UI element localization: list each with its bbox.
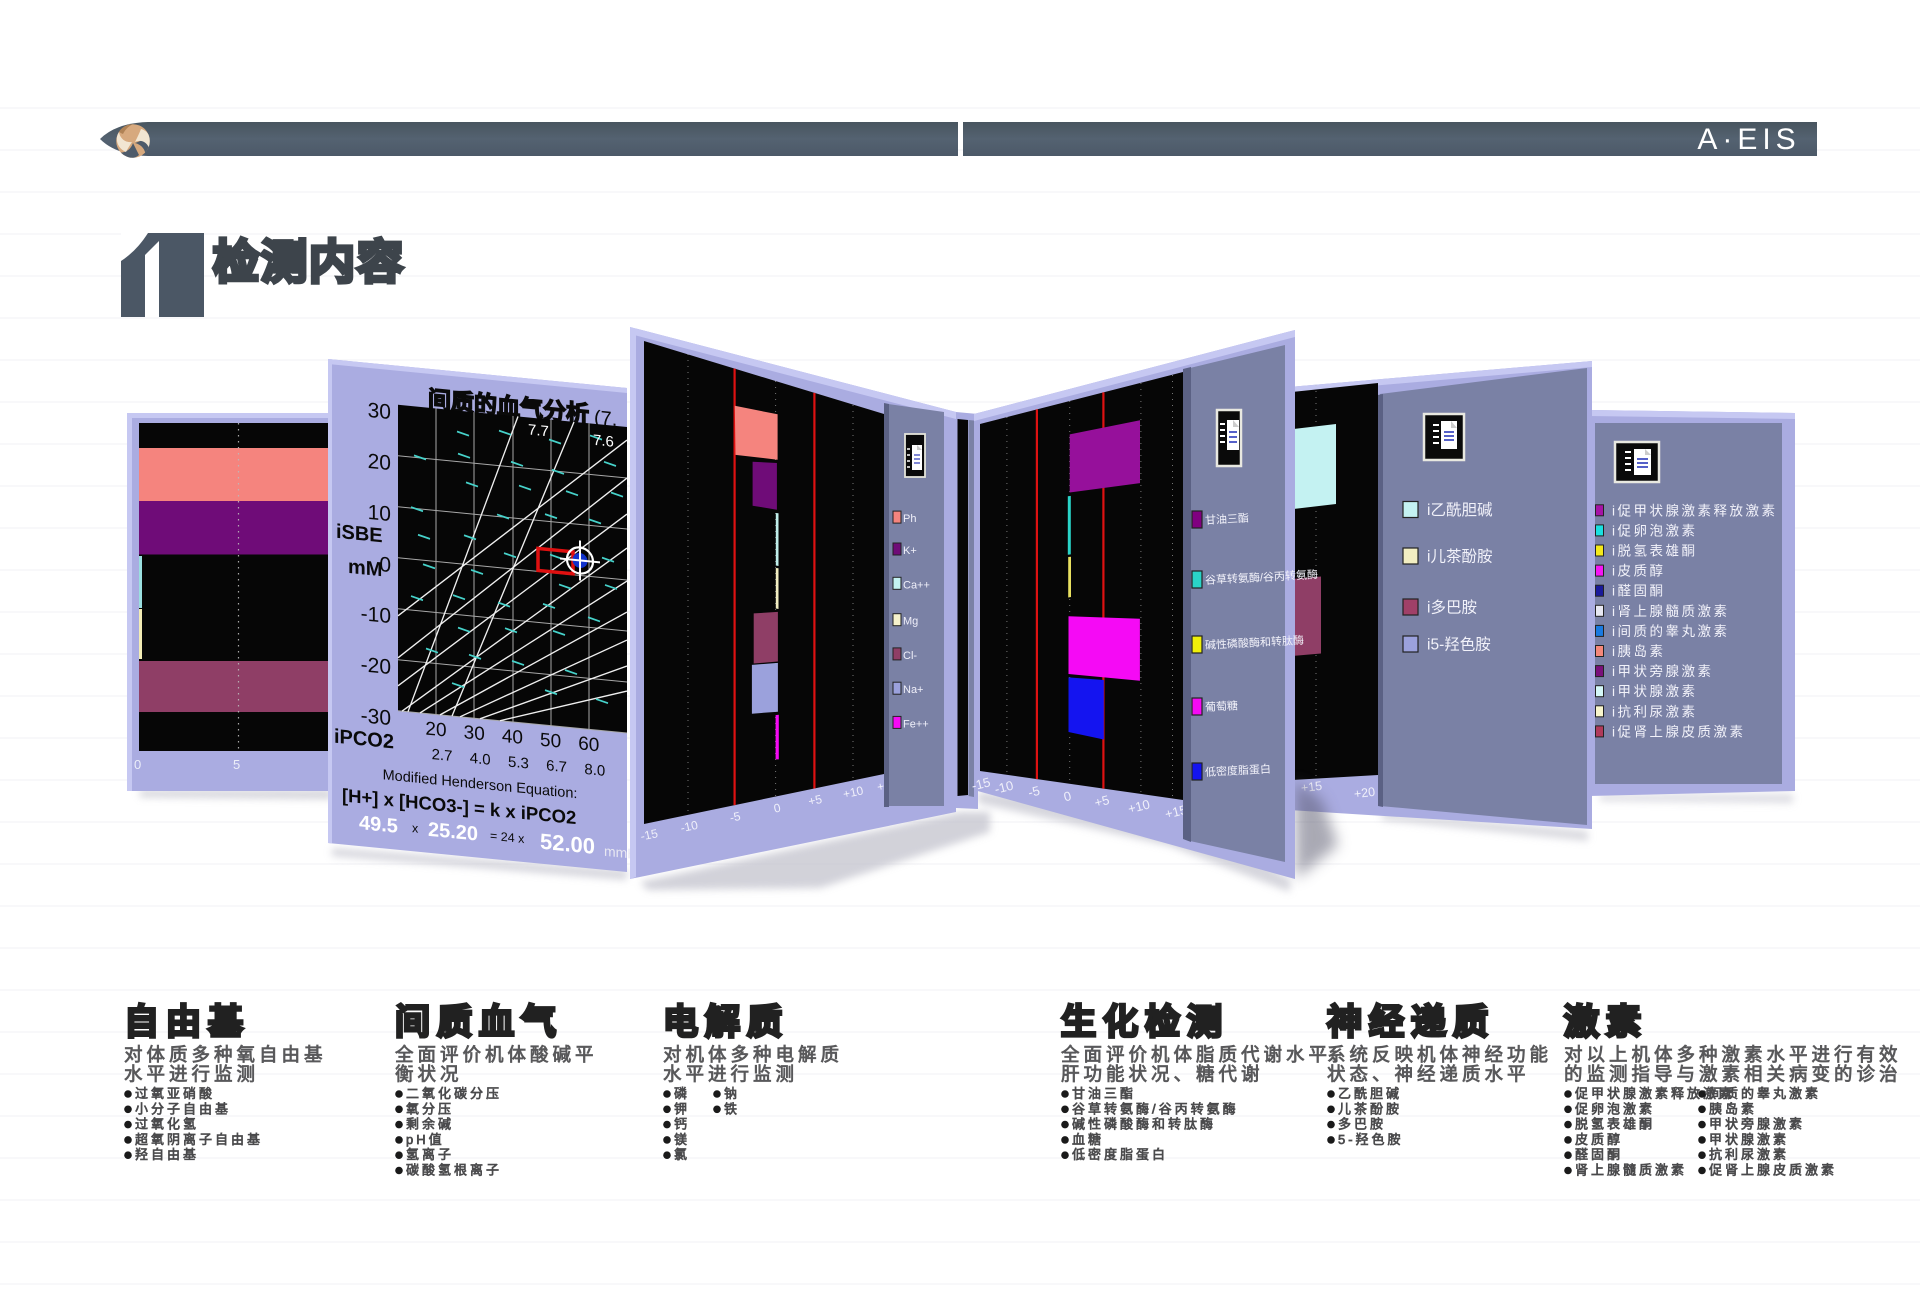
svg-text:间质的睾丸激素: 间质的睾丸激素 [1709,1086,1821,1101]
svg-text:肝功能状况、糖代谢: 肝功能状况、糖代谢 [1061,1064,1264,1085]
svg-text:皮质醇: 皮质醇 [1575,1132,1623,1147]
svg-text:氯: 氯 [674,1147,690,1162]
svg-text:碱性磷酸酶和转肽酶: 碱性磷酸酶和转肽酶 [1072,1117,1216,1132]
svg-text:0: 0 [134,757,141,772]
svg-text:对以上机体多种激素水平进行有效: 对以上机体多种激素水平进行有效 [1564,1044,1902,1065]
svg-text:i儿茶酚胺: i儿茶酚胺 [1427,548,1492,566]
svg-text:过氧化氢: 过氧化氢 [135,1117,199,1132]
svg-text:抗利尿激素: 抗利尿激素 [1709,1147,1789,1162]
svg-text:+20: +20 [1353,785,1376,801]
svg-text:5-羟色胺: 5-羟色胺 [1338,1132,1404,1147]
svg-text:pH值: pH值 [406,1132,445,1147]
svg-text:剩余碱: 剩余碱 [406,1117,454,1132]
svg-text:钠: 钠 [724,1086,740,1101]
svg-text:30: 30 [464,722,485,745]
svg-text:检测内容: 检测内容 [213,236,405,288]
svg-text:50: 50 [540,730,561,753]
svg-text:52.00: 52.00 [540,829,595,859]
svg-text:铁: 铁 [724,1101,740,1116]
svg-text:-30: -30 [361,704,391,730]
svg-text:羟自由基: 羟自由基 [135,1147,199,1162]
svg-text:激素: 激素 [1564,1003,1648,1042]
svg-text:肾上腺髓质激素: 肾上腺髓质激素 [1575,1163,1687,1178]
svg-text:i促卵泡激素: i促卵泡激素 [1612,523,1698,538]
svg-text:二氧化碳分压: 二氧化碳分压 [406,1086,502,1101]
svg-text:衡状况: 衡状况 [395,1064,463,1085]
svg-text:20: 20 [368,450,391,475]
svg-text:i乙酰胆碱: i乙酰胆碱 [1427,501,1493,519]
svg-text:状态、神经递质水平: 状态、神经递质水平 [1327,1064,1530,1085]
svg-text:氧分压: 氧分压 [406,1101,454,1116]
svg-text:水平进行监测: 水平进行监测 [663,1064,798,1085]
svg-text:5: 5 [233,757,240,772]
svg-text:i醛固酮: i醛固酮 [1612,584,1666,599]
svg-text:神经递质: 神经递质 [1327,1003,1495,1042]
svg-text:i甲状旁腺激素: i甲状旁腺激素 [1612,663,1714,679]
svg-text:儿茶酚胺: 儿茶酚胺 [1338,1101,1402,1116]
svg-text:乙酰胆碱: 乙酰胆碱 [1338,1086,1402,1101]
svg-text:Ca++: Ca++ [903,579,930,591]
svg-text:-10: -10 [361,602,391,628]
svg-text:脱氢表雄酮: 脱氢表雄酮 [1575,1117,1655,1132]
svg-text:K+: K+ [903,545,917,557]
svg-text:胰岛素: 胰岛素 [1709,1101,1757,1116]
svg-text:i促肾上腺皮质激素: i促肾上腺皮质激素 [1612,724,1746,739]
svg-text:自由基: 自由基 [124,1003,250,1042]
svg-text:超氧阴离子自由基: 超氧阴离子自由基 [135,1132,263,1147]
svg-text:对体质多种氧自由基: 对体质多种氧自由基 [124,1044,327,1065]
svg-text:i5-羟色胺: i5-羟色胺 [1427,636,1491,654]
svg-text:全面评价机体酸碱平: 全面评价机体酸碱平 [395,1044,598,1065]
svg-text:多巴胺: 多巴胺 [1338,1117,1386,1132]
svg-text:钙: 钙 [674,1117,690,1132]
svg-text:i促甲状腺激素释放激素: i促甲状腺激素释放激素 [1612,503,1778,518]
svg-text:i肾上腺髓质激素: i肾上腺髓质激素 [1612,604,1730,619]
svg-text:水平进行监测: 水平进行监测 [124,1064,259,1085]
svg-text:i抗利尿激素: i抗利尿激素 [1612,704,1698,719]
svg-text:i甲状腺激素: i甲状腺激素 [1612,684,1698,699]
svg-text:电解质: 电解质 [663,1003,789,1042]
svg-text:-20: -20 [361,653,391,679]
svg-text:30: 30 [368,399,391,424]
svg-text:小分子自由基: 小分子自由基 [135,1101,231,1116]
svg-text:6.7: 6.7 [546,757,567,776]
svg-text:2.7: 2.7 [432,746,453,765]
svg-text:10: 10 [368,501,391,526]
svg-text:Cl-: Cl- [903,650,917,662]
svg-text:血糖: 血糖 [1072,1132,1104,1147]
svg-text:的监测指导与激素相关病变的诊治: 的监测指导与激素相关病变的诊治 [1564,1064,1902,1085]
svg-text:过氧亚硝酸: 过氧亚硝酸 [135,1086,215,1101]
svg-text:甲状腺激素: 甲状腺激素 [1709,1132,1789,1147]
svg-text:7.7: 7.7 [528,421,549,440]
svg-text:镁: 镁 [674,1132,690,1147]
svg-text:Fe++: Fe++ [903,718,929,730]
svg-text:促卵泡激素: 促卵泡激素 [1575,1101,1655,1116]
svg-text:i脱氢表雄酮: i脱氢表雄酮 [1612,544,1698,559]
svg-text:Ph: Ph [903,513,916,525]
svg-text:i胰岛素: i胰岛素 [1612,644,1666,659]
svg-text:甘油三酯: 甘油三酯 [1072,1086,1136,1101]
svg-text:4.0: 4.0 [470,750,491,769]
svg-text:低密度脂蛋白: 低密度脂蛋白 [1072,1147,1168,1162]
svg-text:谷草转氨酶/谷丙转氨酶: 谷草转氨酶/谷丙转氨酶 [1072,1101,1239,1116]
svg-text:A·EIS: A·EIS [1697,123,1800,156]
svg-text:全面评价机体脂质代谢水平、: 全面评价机体脂质代谢水平、 [1061,1044,1354,1065]
svg-text:碳酸氢根离子: 碳酸氢根离子 [406,1163,502,1178]
svg-text:x: x [412,821,419,836]
svg-text:mM: mM [348,556,382,581]
svg-text:磷: 磷 [674,1086,690,1101]
svg-text:间质血气: 间质血气 [395,1003,563,1042]
svg-text:i间质的睾丸激素: i间质的睾丸激素 [1612,624,1730,639]
svg-text:钾: 钾 [674,1101,690,1116]
svg-text:20: 20 [425,719,446,742]
svg-text:对机体多种电解质: 对机体多种电解质 [663,1044,843,1065]
svg-text:60: 60 [578,733,599,756]
svg-text:甲状旁腺激素: 甲状旁腺激素 [1709,1117,1805,1132]
svg-text:氢离子: 氢离子 [406,1147,454,1162]
svg-text:8.0: 8.0 [584,761,605,780]
svg-text:生化检测: 生化检测 [1061,1003,1229,1042]
svg-text:i皮质醇: i皮质醇 [1612,563,1666,579]
svg-text:49.5: 49.5 [359,812,398,838]
svg-text:5.3: 5.3 [508,754,529,773]
svg-text:i多巴胺: i多巴胺 [1427,599,1477,617]
svg-text:Mg: Mg [903,616,918,628]
svg-text:iSBE: iSBE [336,521,383,547]
svg-text:促肾上腺皮质激素: 促肾上腺皮质激素 [1709,1163,1837,1178]
svg-text:系统反映机体神经功能: 系统反映机体神经功能 [1327,1044,1552,1065]
svg-text:40: 40 [502,726,523,749]
svg-text:醛固酮: 醛固酮 [1575,1147,1623,1162]
svg-text:Na+: Na+ [903,684,924,696]
svg-text:7.6: 7.6 [593,432,614,451]
